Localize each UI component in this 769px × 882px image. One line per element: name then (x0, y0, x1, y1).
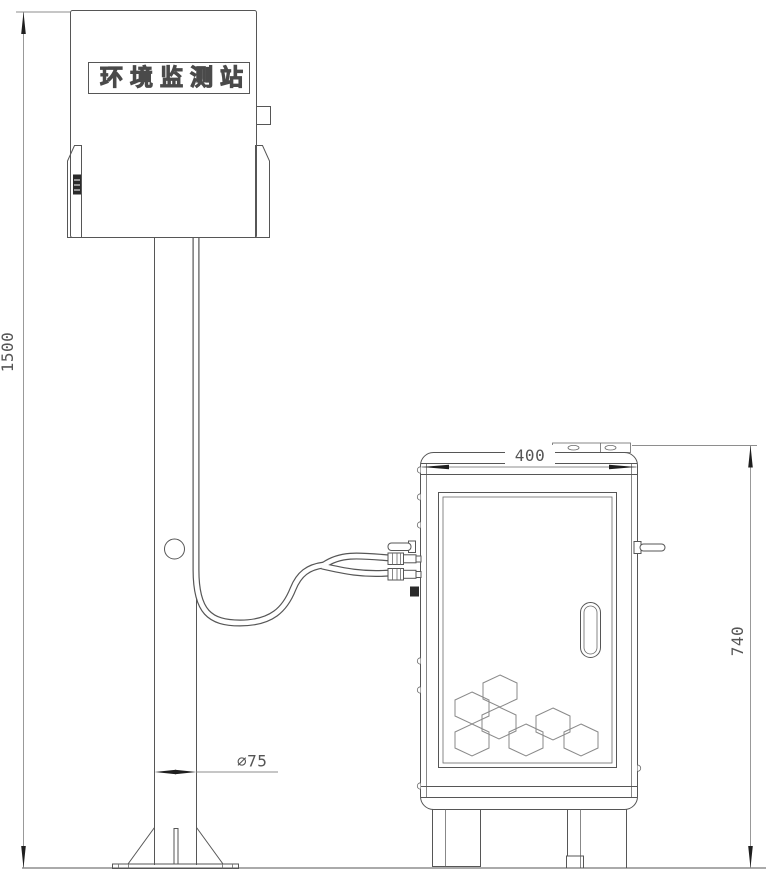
right-gusset (197, 828, 224, 865)
left-gusset (128, 828, 155, 865)
pole-base (113, 828, 239, 869)
side-port (411, 587, 419, 596)
cabinet-body (421, 453, 638, 810)
equipment-cabinet (388, 443, 665, 868)
right-antenna-rod (634, 542, 665, 554)
station-enclosure: 环境监测站 (68, 11, 271, 238)
dimension-pole-height: 1500 (0, 12, 70, 868)
anchor-bolt (174, 829, 178, 865)
dimension-pole-diameter: ∅75 (155, 752, 279, 775)
leg-foot (567, 856, 584, 868)
station-name-text: 环境监测站 (100, 64, 250, 91)
pole-hole (165, 539, 185, 559)
cabinet-height-label: 740 (728, 626, 747, 656)
cable-gland-top (388, 553, 421, 565)
right-bracket (256, 146, 270, 238)
cabinet-legs (433, 810, 627, 869)
technical-drawing: 1500 环境监测站 ∅75 (0, 0, 769, 882)
cable-gland-bottom (388, 569, 421, 581)
left-antenna-rod (388, 541, 416, 553)
side-latch (257, 107, 271, 125)
lock-catch (638, 765, 641, 771)
pole-height-label: 1500 (0, 332, 17, 373)
pole-diameter-label: ∅75 (237, 752, 267, 771)
signal-cable (196, 238, 390, 623)
top-bracket (553, 443, 631, 453)
dimension-cabinet-height: 740 (632, 446, 757, 869)
cabinet-width-label: 400 (515, 446, 545, 465)
